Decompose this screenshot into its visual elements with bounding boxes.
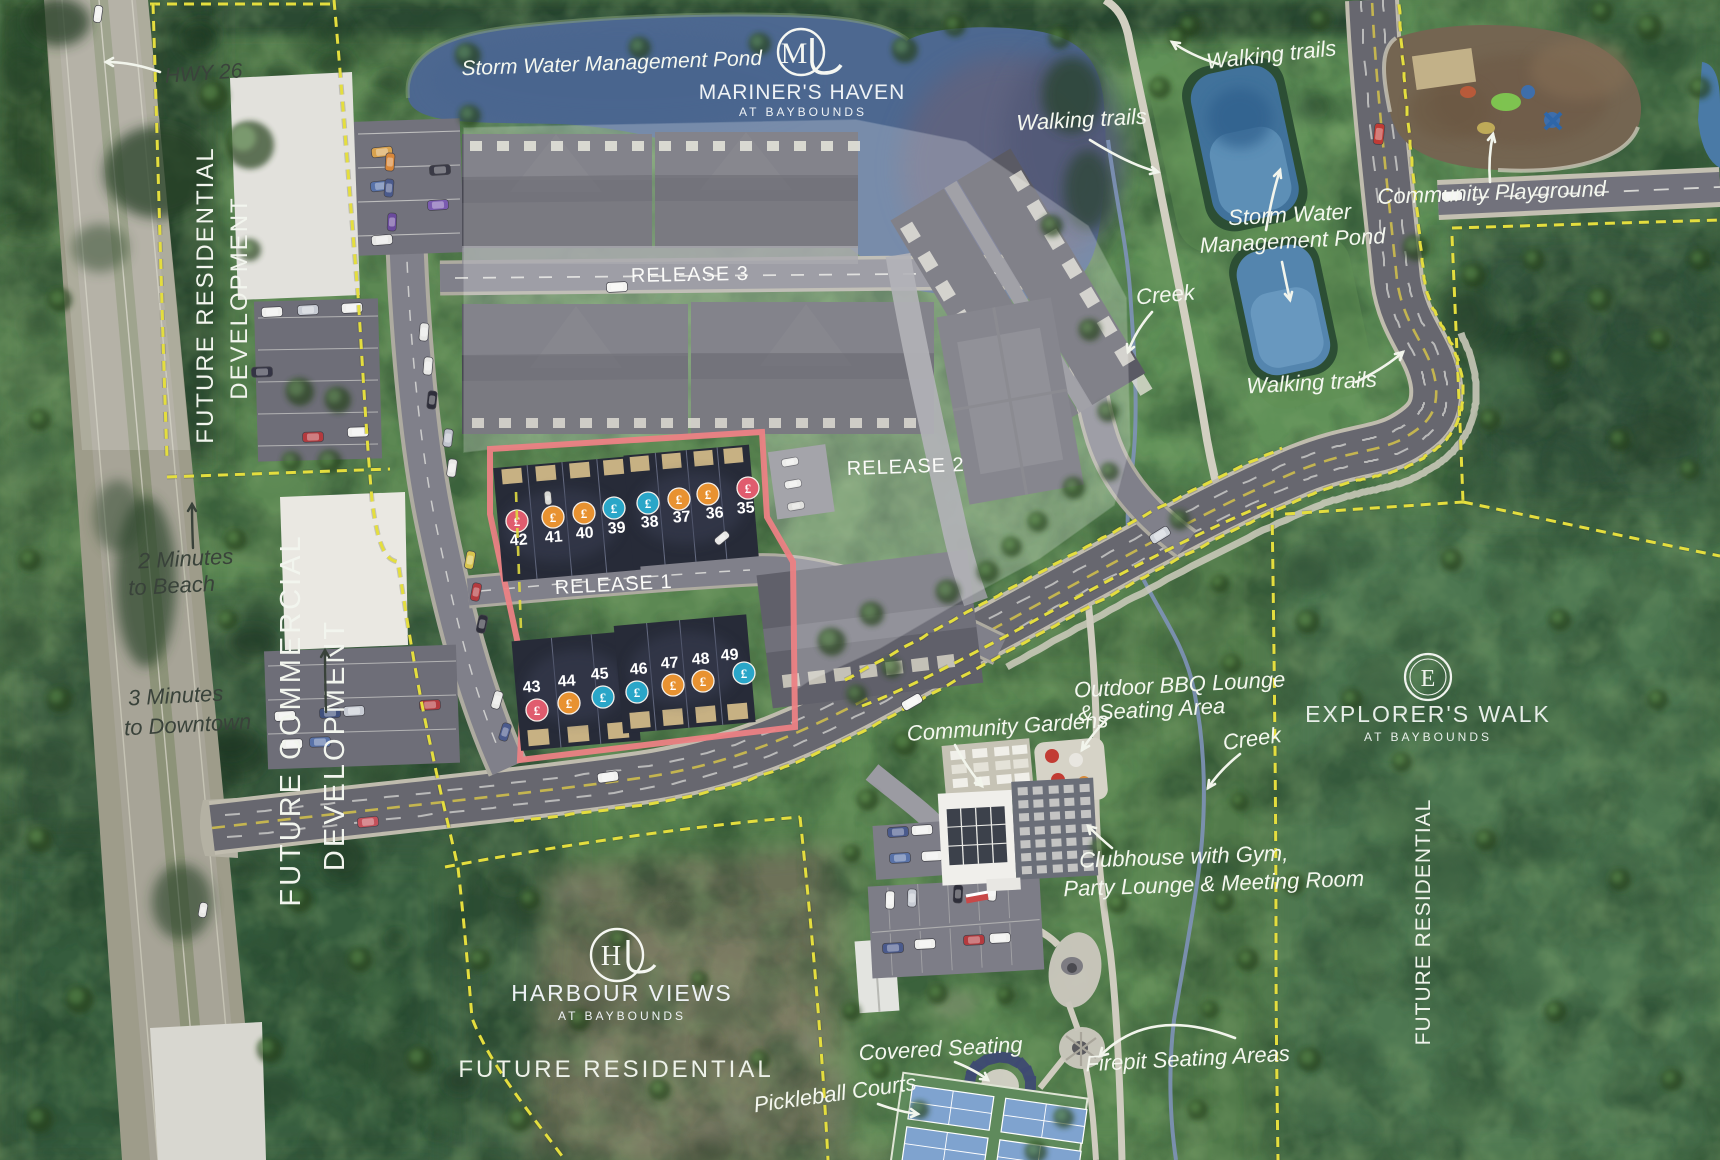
- svg-text:FUTURE RESIDENTIAL: FUTURE RESIDENTIAL: [192, 146, 219, 443]
- svg-text:£: £: [581, 506, 588, 521]
- svg-text:Creek: Creek: [1135, 279, 1197, 309]
- svg-text:£: £: [670, 678, 677, 693]
- svg-text:36: 36: [705, 504, 724, 522]
- svg-text:EXPLORER'S WALK: EXPLORER'S WALK: [1305, 701, 1551, 727]
- svg-text:£: £: [566, 696, 573, 711]
- svg-text:RELEASE 3: RELEASE 3: [631, 263, 749, 287]
- svg-text:MARINER'S HAVEN: MARINER'S HAVEN: [699, 81, 905, 104]
- svg-text:43: 43: [522, 678, 541, 696]
- svg-text:£: £: [741, 666, 748, 681]
- svg-text:FUTURE RESIDENTIAL: FUTURE RESIDENTIAL: [1412, 799, 1435, 1046]
- svg-text:AT BAYBOUNDS: AT BAYBOUNDS: [739, 105, 867, 119]
- svg-text:39: 39: [607, 519, 626, 537]
- svg-text:RELEASE 2: RELEASE 2: [846, 454, 965, 480]
- svg-text:35: 35: [736, 499, 755, 517]
- svg-text:DEVELOPMENT: DEVELOPMENT: [226, 196, 253, 399]
- svg-text:47: 47: [660, 654, 679, 672]
- svg-text:41: 41: [544, 528, 563, 546]
- svg-text:3 Minutes: 3 Minutes: [127, 681, 224, 711]
- svg-text:48: 48: [691, 650, 710, 668]
- svg-text:£: £: [634, 685, 641, 700]
- svg-text:£: £: [600, 690, 607, 705]
- svg-text:FUTURE RESIDENTIAL: FUTURE RESIDENTIAL: [458, 1056, 773, 1083]
- svg-text:£: £: [534, 703, 541, 718]
- svg-text:49: 49: [720, 646, 739, 664]
- svg-text:£: £: [611, 501, 618, 516]
- svg-text:£: £: [700, 674, 707, 689]
- svg-text:£: £: [645, 496, 652, 511]
- svg-text:45: 45: [590, 665, 609, 683]
- svg-text:M: M: [781, 37, 808, 70]
- svg-text:46: 46: [629, 660, 648, 678]
- svg-text:HARBOUR VIEWS: HARBOUR VIEWS: [511, 980, 733, 1006]
- svg-text:37: 37: [672, 508, 691, 526]
- svg-text:AT BAYBOUNDS: AT BAYBOUNDS: [1364, 730, 1492, 744]
- svg-text:40: 40: [575, 524, 594, 542]
- svg-text:£: £: [676, 492, 683, 507]
- svg-text:to Beach: to Beach: [128, 571, 216, 601]
- svg-text:44: 44: [557, 672, 576, 690]
- svg-text:2 Minutes: 2 Minutes: [136, 544, 234, 574]
- svg-text:AT BAYBOUNDS: AT BAYBOUNDS: [558, 1009, 686, 1023]
- svg-text:£: £: [705, 487, 712, 502]
- svg-text:£: £: [550, 510, 557, 525]
- svg-text:H: H: [601, 941, 621, 972]
- svg-text:DEVELOPMENT: DEVELOPMENT: [319, 619, 351, 871]
- svg-text:38: 38: [640, 513, 659, 531]
- svg-text:£: £: [745, 481, 752, 496]
- svg-text:E: E: [1421, 666, 1436, 692]
- svg-text:FUTURE COMMERCIAL: FUTURE COMMERCIAL: [275, 533, 307, 906]
